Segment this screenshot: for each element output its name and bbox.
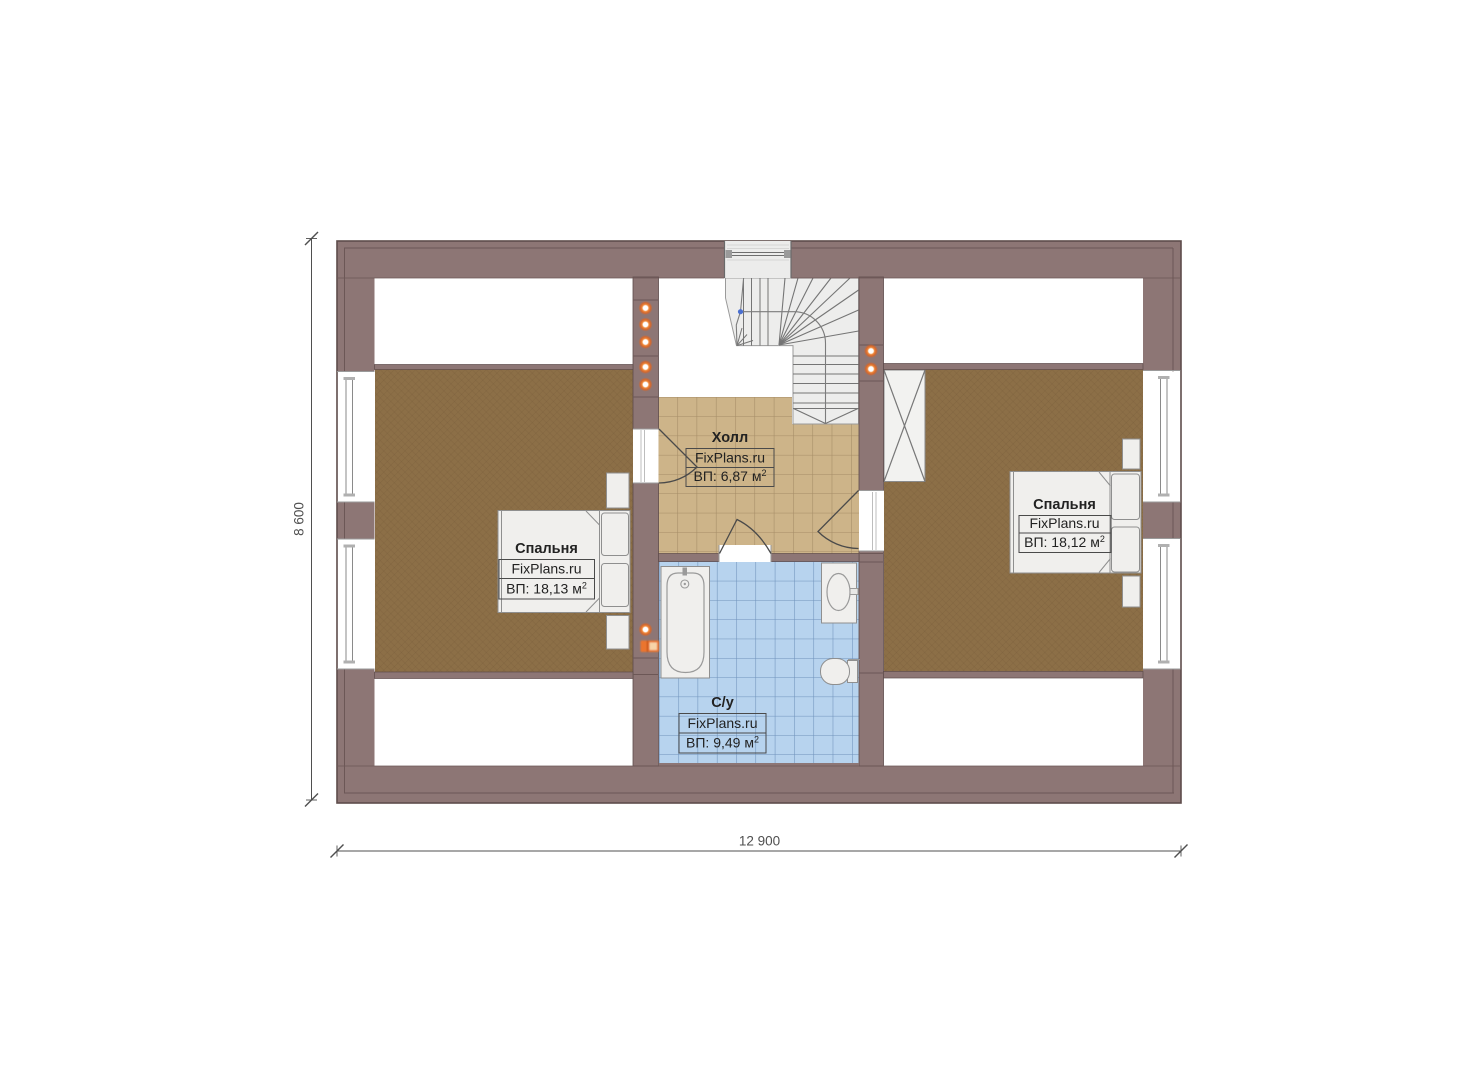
svg-text:ВП: 9,49 м2: ВП: 9,49 м2	[686, 735, 759, 751]
svg-text:ВП: 18,12 м2: ВП: 18,12 м2	[1024, 534, 1105, 550]
svg-text:12 900: 12 900	[739, 834, 780, 849]
svg-text:ВП: 18,13 м2: ВП: 18,13 м2	[506, 581, 587, 597]
svg-text:Спальня: Спальня	[1033, 497, 1096, 513]
svg-text:FixPlans.ru: FixPlans.ru	[695, 450, 765, 466]
svg-text:ВП: 6,87 м2: ВП: 6,87 м2	[694, 468, 767, 484]
svg-text:8 600: 8 600	[292, 502, 307, 536]
svg-text:С/у: С/у	[711, 695, 734, 711]
svg-text:FixPlans.ru: FixPlans.ru	[687, 715, 757, 731]
svg-text:FixPlans.ru: FixPlans.ru	[1029, 515, 1099, 531]
svg-text:Холл: Холл	[712, 430, 748, 446]
svg-text:Спальня: Спальня	[515, 541, 578, 557]
svg-text:FixPlans.ru: FixPlans.ru	[511, 561, 581, 577]
